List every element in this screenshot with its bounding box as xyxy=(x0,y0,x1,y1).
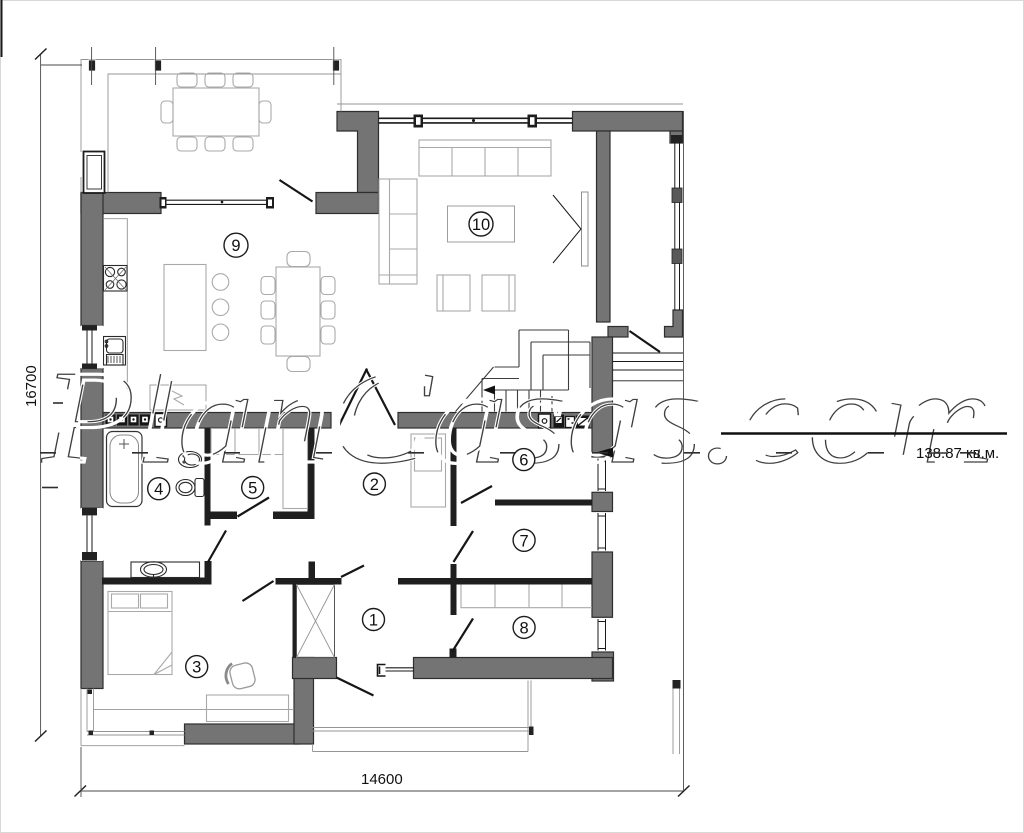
svg-text:6: 6 xyxy=(519,452,528,470)
svg-text:14600: 14600 xyxy=(361,771,403,788)
svg-text:2: 2 xyxy=(370,476,379,494)
svg-text:4: 4 xyxy=(154,481,163,499)
svg-text:16700: 16700 xyxy=(23,365,40,407)
svg-text:10: 10 xyxy=(472,216,490,234)
svg-text:9: 9 xyxy=(231,237,240,255)
svg-text:5: 5 xyxy=(248,480,257,498)
svg-text:1: 1 xyxy=(369,612,378,630)
svg-text:7: 7 xyxy=(520,532,529,550)
svg-text:8: 8 xyxy=(520,619,529,637)
svg-text:3: 3 xyxy=(192,659,201,677)
